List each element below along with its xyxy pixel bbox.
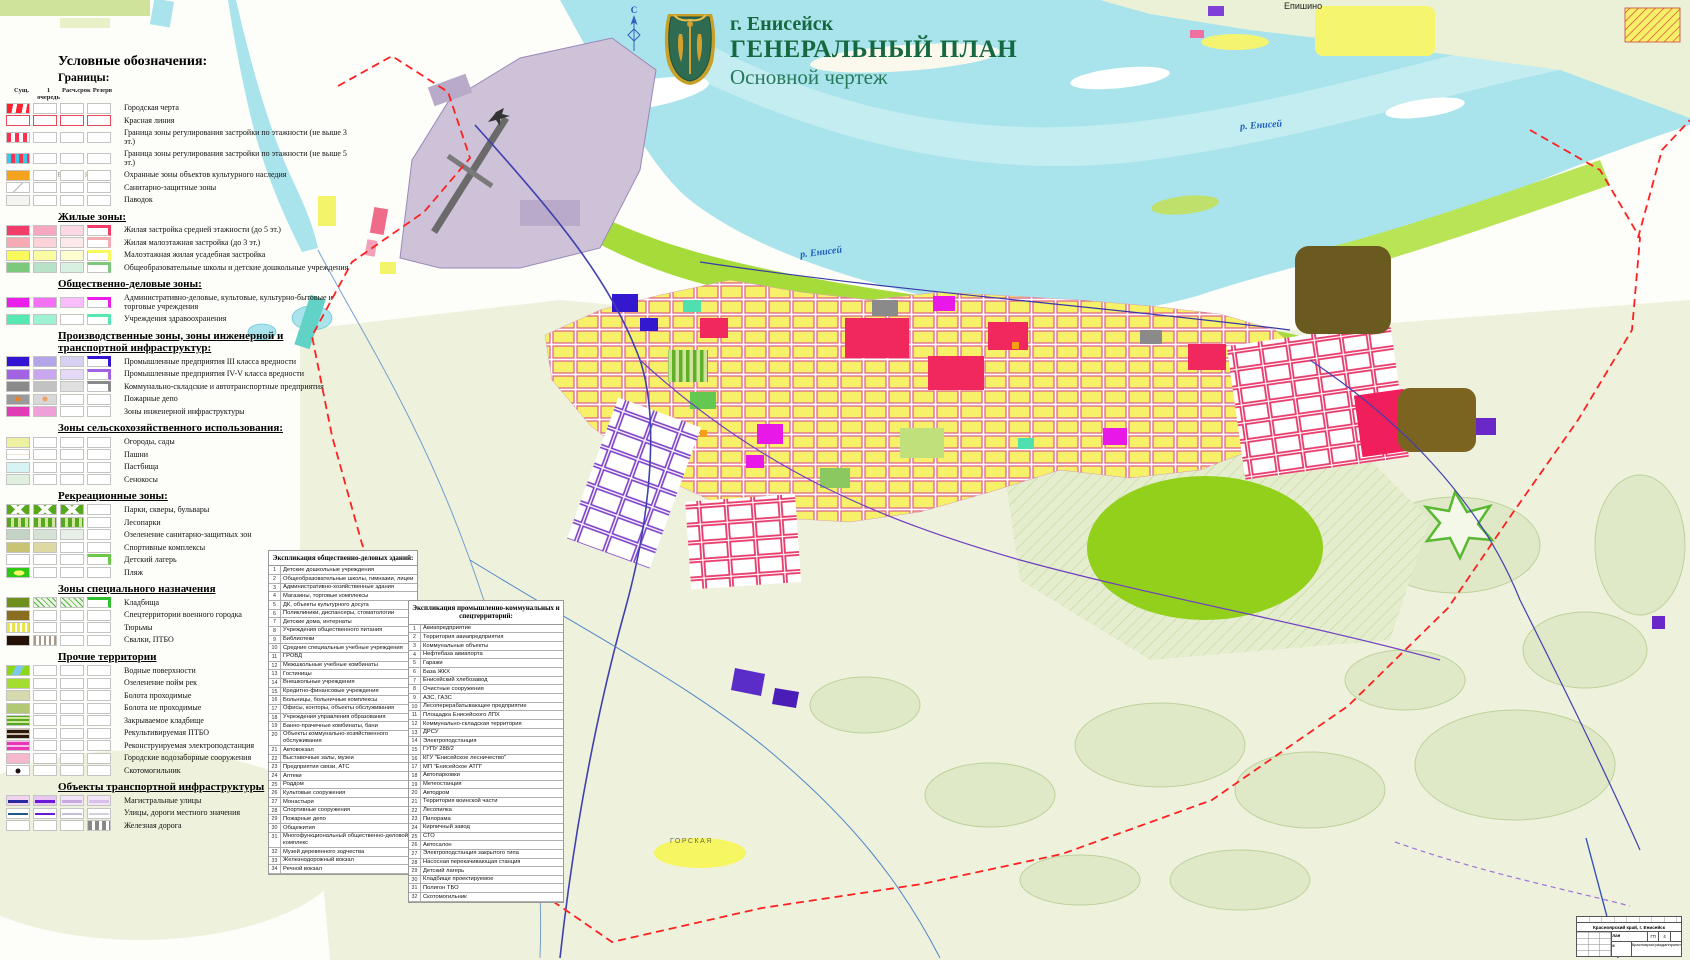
explication-row-text: Коммунально-складская территория <box>421 720 524 728</box>
explication-row-number: 6 <box>409 668 421 676</box>
city-name: г. Енисейск <box>730 12 1017 36</box>
explication-row-text: Многофункциональный общественно-деловой … <box>281 833 417 847</box>
legend-item-label: Спортивные комплексы <box>118 543 354 553</box>
legend-swatch <box>60 715 84 726</box>
settlement-label: Епишино <box>1284 1 1322 11</box>
explication-row: 24Кирпичный завод <box>409 824 563 833</box>
legend-column-label: Резерв <box>89 87 116 101</box>
legend-swatch <box>60 517 84 528</box>
explication-row-number: 14 <box>409 737 421 745</box>
legend-item-label: Граница зоны регулирования застройки по … <box>118 149 354 169</box>
legend-swatch <box>87 250 111 261</box>
legend-swatch <box>33 665 57 676</box>
legend-swatch <box>6 262 30 273</box>
legend-item: Пляж <box>6 567 354 578</box>
explication-row-number: 19 <box>409 781 421 789</box>
legend-item: Спецтерритории военного городка <box>6 610 354 621</box>
legend-swatch <box>60 529 84 540</box>
legend-swatches <box>6 808 118 819</box>
explication-row-text: Автосалон <box>421 841 454 849</box>
legend-item-label: Огороды, сады <box>118 437 354 447</box>
explication-row: 5Гаражи <box>409 659 563 668</box>
legend-item: Водные поверхности <box>6 665 354 676</box>
explication-row: 19Метеостанция <box>409 781 563 790</box>
explication-row-number: 28 <box>409 859 421 867</box>
legend-item: Озеленение санитарно-защитных зон <box>6 529 354 540</box>
legend-swatch <box>87 765 111 776</box>
explication-row-number: 23 <box>409 815 421 823</box>
legend-swatch <box>87 554 111 565</box>
legend-item: Городские водозаборные сооружения <box>6 753 354 764</box>
explication-row-text: Насосная перекачивающая станция <box>421 859 522 867</box>
district-label: ГОРСКАЯ <box>670 838 713 845</box>
compass-north: С <box>624 6 644 58</box>
explication-row: 21Территория воинской части <box>409 798 563 807</box>
explication-row-number: 17 <box>409 763 421 771</box>
legend-swatch <box>60 182 84 193</box>
legend-swatches <box>6 740 118 751</box>
legend-swatch <box>33 394 57 405</box>
legend-item-label: Пожарные депо <box>118 394 354 404</box>
legend-swatch <box>87 728 111 739</box>
legend-item-label: Пастбища <box>118 462 354 472</box>
legend-swatch <box>6 297 30 308</box>
legend-item: Пашни <box>6 449 354 460</box>
explication-row-number: 15 <box>409 746 421 754</box>
legend-swatches <box>6 381 118 392</box>
legend-swatch <box>33 820 57 831</box>
legend-item-label: Пашни <box>118 450 354 460</box>
legend-swatch <box>87 153 111 164</box>
explication-row-text: КГУ "Енисейское лесничество" <box>421 755 508 763</box>
explication-row-number: 7 <box>409 677 421 685</box>
legend-swatch <box>33 406 57 417</box>
legend-swatches <box>6 225 118 236</box>
explication-row: 16КГУ "Енисейское лесничество" <box>409 755 563 764</box>
legend-column-label: Сущ. <box>8 87 35 101</box>
legend-item-label: Болота проходимые <box>118 691 354 701</box>
legend-swatches <box>6 356 118 367</box>
explication-row-text: ГУПУ 288/2 <box>421 746 456 754</box>
legend-swatches <box>6 690 118 701</box>
legend-swatches <box>6 567 118 578</box>
legend-item: Кладбища <box>6 597 354 608</box>
explication-row-text: Лесоперерабатывающее предприятие <box>421 703 529 711</box>
legend-swatches <box>6 765 118 776</box>
explication-row: 20Автодром <box>409 789 563 798</box>
legend-swatch <box>60 297 84 308</box>
swatch-road-line <box>8 800 28 803</box>
legend-item-label: Административно-деловые, культовые, куль… <box>118 293 354 313</box>
legend-item-label: Скотомогильник <box>118 766 354 776</box>
legend-heading: Условные обозначения: <box>58 54 354 70</box>
legend-swatch <box>60 622 84 633</box>
legend-swatch <box>33 369 57 380</box>
explication-row: 30Кладбище проектируемое <box>409 876 563 885</box>
explication-row: 10Лесоперерабатывающее предприятие <box>409 703 563 712</box>
explication-row-number: 4 <box>409 651 421 659</box>
legend-swatch <box>60 394 84 405</box>
legend-swatch <box>60 765 84 776</box>
legend-swatch <box>33 795 57 806</box>
legend-swatch <box>6 437 30 448</box>
explication-row-number: 11 <box>409 711 421 719</box>
legend-swatch <box>60 690 84 701</box>
legend-item-label: Пляж <box>118 568 354 578</box>
plan-title: ГЕНЕРАЛЬНЫЙ ПЛАН <box>730 36 1017 65</box>
legend-section-header: Объекты транспортной инфраструктуры <box>58 781 338 793</box>
legend-swatch <box>33 808 57 819</box>
legend-swatch <box>6 554 30 565</box>
legend-swatch <box>33 225 57 236</box>
explication-row-number: 27 <box>409 850 421 858</box>
explication-row-text: Площадка Енисейского ЛПХ <box>421 711 502 719</box>
legend-item-label: Тюрьмы <box>118 623 354 633</box>
legend-columns: Сущ.1 очередьРасч.срокРезерв <box>8 87 354 101</box>
legend-swatch <box>87 715 111 726</box>
legend-swatches <box>6 170 118 181</box>
explication-row-text: Территория воинской части <box>421 798 499 806</box>
legend-swatch <box>60 195 84 206</box>
legend-swatches <box>6 115 118 126</box>
legend-swatch <box>33 250 57 261</box>
legend-swatch <box>87 690 111 701</box>
legend-item: Административно-деловые, культовые, куль… <box>6 293 354 313</box>
legend-item-label: Жилая малоэтажная застройка (до 3 эт.) <box>118 238 354 248</box>
legend-swatch <box>6 517 30 528</box>
legend-swatches <box>6 610 118 621</box>
legend-section-header: Прочие территории <box>58 651 338 663</box>
legend-swatch <box>6 314 30 325</box>
compass-letter: С <box>624 6 644 15</box>
legend-item: Озеленение пойм рек <box>6 678 354 689</box>
legend-swatch <box>87 394 111 405</box>
explication-row: 25СТО <box>409 833 563 842</box>
explication-row-text: База ЖКХ <box>421 668 452 676</box>
legend-swatch <box>6 394 30 405</box>
legend-swatch <box>33 753 57 764</box>
explication-row-text: Лесопилка <box>421 807 454 815</box>
stamp-organization: Красноярскгражданпроект <box>1632 942 1681 956</box>
legend-swatches <box>6 622 118 633</box>
swatch-road-line <box>35 813 55 816</box>
legend-swatch <box>6 567 30 578</box>
legend-item: Пастбища <box>6 462 354 473</box>
explication-row: 28Насосная перекачивающая станция <box>409 859 563 868</box>
legend-swatch <box>6 356 30 367</box>
legend-item-label: Общеобразовательные школы и детские дошк… <box>118 263 354 273</box>
legend-swatch <box>6 153 30 164</box>
legend-swatch <box>87 225 111 236</box>
legend-item-label: Закрываемое кладбище <box>118 716 354 726</box>
legend-item-label: Озеленение санитарно-защитных зон <box>118 530 354 540</box>
explication-row-number: 22 <box>409 807 421 815</box>
stamp-signature-grid <box>1577 931 1612 956</box>
swatch-road-line <box>89 813 109 816</box>
legend-swatch <box>60 115 84 126</box>
legend-item-label: Промышленные предприятия III класса вред… <box>118 357 354 367</box>
legend-swatch <box>6 808 30 819</box>
legend-swatches <box>6 153 118 164</box>
legend-item-label: Рекультивируемая ПТБО <box>118 728 354 738</box>
legend-swatches <box>6 262 118 273</box>
legend-swatch <box>60 103 84 114</box>
legend-swatch <box>6 369 30 380</box>
explication-row: 27Электроподстанция закрытого типа <box>409 850 563 859</box>
explication-title: Экспликация промышленно-коммунальных и с… <box>409 601 563 624</box>
explication-row-text: Метеостанция <box>421 781 464 789</box>
legend-item-label: Городская черта <box>118 103 354 113</box>
explication-row-text: Музей деревянного зодчества <box>281 848 366 856</box>
legend-swatch <box>6 820 30 831</box>
legend-swatches <box>6 504 118 515</box>
legend-swatch <box>60 437 84 448</box>
legend-swatch <box>60 635 84 646</box>
explication-row-number: 12 <box>409 720 421 728</box>
legend-swatch <box>87 115 111 126</box>
legend-item-label: Водные поверхности <box>118 666 354 676</box>
legend-column-label: 1 очередь <box>35 87 62 101</box>
legend-swatches <box>6 437 118 448</box>
explication-industrial-territories: Экспликация промышленно-коммунальных и с… <box>408 600 564 903</box>
legend-swatch <box>6 542 30 553</box>
explication-row-number: 31 <box>269 833 281 847</box>
explication-row: 33Железнодорожный вокзал <box>269 857 417 866</box>
legend-swatch <box>6 406 30 417</box>
legend-swatch <box>33 195 57 206</box>
legend-swatches <box>6 462 118 473</box>
legend-item-label: Железная дорога <box>118 821 354 831</box>
legend-swatch <box>33 132 57 143</box>
legend-swatches <box>6 474 118 485</box>
explication-row: 1Авиапредприятие <box>409 625 563 634</box>
legend-section-header: Зоны специального назначения <box>58 583 338 595</box>
legend-swatch <box>6 225 30 236</box>
explication-row-number: 21 <box>409 798 421 806</box>
explication-row: 18Автопарковки <box>409 772 563 781</box>
legend-swatch <box>6 753 30 764</box>
legend-swatches <box>6 795 118 806</box>
legend-swatch <box>33 356 57 367</box>
legend-swatch <box>33 153 57 164</box>
explication-row: 14Электроподстанция <box>409 737 563 746</box>
legend-swatches <box>6 529 118 540</box>
explication-row: 2Территория авиапредприятия <box>409 633 563 642</box>
legend-swatch <box>6 715 30 726</box>
legend-swatch <box>6 462 30 473</box>
legend-swatches <box>6 753 118 764</box>
explication-row-text: Автодром <box>421 789 451 797</box>
genplan-sheet: С г. Енисейск ГЕНЕРАЛЬНЫЙ ПЛАН Основной … <box>0 0 1690 960</box>
explication-row-text: АЗС, ГАЗС <box>421 694 454 702</box>
legend-item: Учреждения здравоохранения <box>6 314 354 325</box>
explication-rows: 1Авиапредприятие2Территория авиапредприя… <box>409 624 563 902</box>
legend-item-label: Учреждения здравоохранения <box>118 314 354 324</box>
legend-swatches <box>6 678 118 689</box>
legend-swatch <box>6 170 30 181</box>
legend-swatch <box>6 237 30 248</box>
legend-item-label: Коммунально-складские и автотранспортные… <box>118 382 354 392</box>
swatch-dot <box>43 397 48 402</box>
legend-swatch <box>33 597 57 608</box>
legend-swatches <box>6 703 118 714</box>
legend-swatch <box>87 297 111 308</box>
legend-swatch <box>33 504 57 515</box>
legend-item-label: Детский лагерь <box>118 555 354 565</box>
legend-item: Городская черта <box>6 103 354 114</box>
legend-swatch <box>6 765 30 776</box>
title-lines: г. Енисейск ГЕНЕРАЛЬНЫЙ ПЛАН Основной че… <box>730 12 1017 90</box>
legend-swatch <box>33 635 57 646</box>
legend-swatch <box>6 115 30 126</box>
legend-swatch <box>6 103 30 114</box>
explication-row-number: 18 <box>409 772 421 780</box>
explication-row-text: МП "Енисейское АТП" <box>421 763 484 771</box>
legend-swatch <box>33 262 57 273</box>
legend-item-label: Улицы, дороги местного значения <box>118 808 354 818</box>
legend-swatches <box>6 182 118 193</box>
legend-swatch <box>6 250 30 261</box>
legend-swatch <box>60 597 84 608</box>
legend-item-label: Сенокосы <box>118 475 354 485</box>
legend-swatches <box>6 406 118 417</box>
legend-swatch <box>87 103 111 114</box>
legend-swatch <box>87 740 111 751</box>
legend-item: Тюрьмы <box>6 622 354 633</box>
explication-row-number: 16 <box>409 755 421 763</box>
legend-swatch <box>60 728 84 739</box>
legend-section-header: Производственные зоны, зоны инженерной и… <box>58 330 338 355</box>
explication-row: 13ДРСУ <box>409 729 563 738</box>
explication-row-text: Авиапредприятие <box>421 625 473 633</box>
explication-row-number: 3 <box>409 642 421 650</box>
legend-item-label: Озеленение пойм рек <box>118 678 354 688</box>
explication-row-text: Полигон ТБО <box>421 884 461 892</box>
legend-swatch <box>87 635 111 646</box>
explication-row-number: 13 <box>409 729 421 737</box>
legend-swatch <box>33 703 57 714</box>
legend-item: Паводок <box>6 195 354 206</box>
explication-row-number: 33 <box>269 857 281 865</box>
title-stamp: Красноярский край, г. Енисейск Генеральн… <box>1576 916 1682 957</box>
legend-swatches <box>6 297 118 308</box>
explication-row: 32Музей деревянного зодчества <box>269 848 417 857</box>
legend-swatch <box>33 314 57 325</box>
legend-item: Свалки, ПТБО <box>6 635 354 646</box>
legend-swatch <box>87 449 111 460</box>
explication-row-text: Гаражи <box>421 659 445 667</box>
legend-swatches <box>6 237 118 248</box>
legend-item: Скотомогильник <box>6 765 354 776</box>
explication-row-number: 26 <box>409 841 421 849</box>
legend-subheading: Границы: <box>58 72 354 84</box>
legend-swatch <box>87 678 111 689</box>
explication-row-number: 32 <box>269 848 281 856</box>
explication-row: 29Детский лагерь <box>409 867 563 876</box>
legend-swatches <box>6 314 118 325</box>
explication-row: 31Многофункциональный общественно-делово… <box>269 833 417 848</box>
explication-row: 17МП "Енисейское АТП" <box>409 763 563 772</box>
explication-row-text: Енисейский хлебозавод <box>421 677 489 685</box>
explication-row-text: Коммунальные объекты <box>421 642 490 650</box>
legend-swatch <box>33 237 57 248</box>
explication-row: 32Скотомогильник <box>409 893 563 902</box>
legend-section-header: Общественно-деловые зоны: <box>58 278 338 290</box>
swatch-road-line <box>8 813 28 816</box>
explication-row-number: 10 <box>409 703 421 711</box>
legend-swatches <box>6 635 118 646</box>
legend-swatch <box>60 381 84 392</box>
explication-row-text: Железнодорожный вокзал <box>281 857 356 865</box>
legend-swatch <box>60 665 84 676</box>
legend-item: Железная дорога <box>6 820 354 831</box>
legend-swatch <box>87 170 111 181</box>
explication-row-number: 2 <box>409 633 421 641</box>
stamp-stage-cells: ГП 4 <box>1648 932 1681 941</box>
stamp-sheet: 4 <box>1659 932 1670 941</box>
legend-item-label: Парки, скверы, бульвары <box>118 505 354 515</box>
legend-swatch <box>87 262 111 273</box>
legend-item: Лесопарки <box>6 517 354 528</box>
legend-swatch <box>33 103 57 114</box>
legend-item-label: Болота не проходимые <box>118 703 354 713</box>
explication-row: 22Лесопилка <box>409 807 563 816</box>
legend-swatch <box>33 567 57 578</box>
legend-item: Закрываемое кладбище <box>6 715 354 726</box>
legend-swatch <box>60 504 84 515</box>
legend-swatch <box>33 740 57 751</box>
legend-swatch <box>33 182 57 193</box>
legend-swatch <box>33 449 57 460</box>
explication-row-number: 25 <box>409 833 421 841</box>
explication-row-text: Очистные сооружения <box>421 685 486 693</box>
legend-swatch <box>87 622 111 633</box>
explication-row: 15ГУПУ 288/2 <box>409 746 563 755</box>
legend-swatch <box>87 381 111 392</box>
legend-swatch <box>6 678 30 689</box>
legend-swatch <box>33 690 57 701</box>
legend-swatch <box>6 703 30 714</box>
legend-swatch <box>87 132 111 143</box>
legend-swatch <box>87 314 111 325</box>
legend-swatch <box>6 635 30 646</box>
explication-row-number: 24 <box>409 824 421 832</box>
legend-body: Сущ.1 очередьРасч.срокРезервГородская че… <box>6 87 354 831</box>
legend-swatches <box>6 554 118 565</box>
explication-row-number: 34 <box>269 865 281 873</box>
explication-row-text: Электроподстанция закрытого типа <box>421 850 521 858</box>
legend-item-label: Лесопарки <box>118 518 354 528</box>
legend-swatch <box>60 356 84 367</box>
legend-swatch <box>60 554 84 565</box>
legend-swatch <box>60 369 84 380</box>
legend-item-label: Промышленные предприятия IV-V класса вре… <box>118 369 354 379</box>
legend-swatch <box>33 610 57 621</box>
legend-swatch <box>60 250 84 261</box>
legend-swatch <box>33 437 57 448</box>
legend-swatch <box>33 622 57 633</box>
legend-swatch <box>87 820 111 831</box>
legend-swatch <box>60 610 84 621</box>
legend-item-label: Городские водозаборные сооружения <box>118 753 354 763</box>
legend-swatch <box>6 449 30 460</box>
swatch-dot <box>16 397 21 402</box>
legend-item: Жилая застройка средней этажности (до 5 … <box>6 225 354 236</box>
explication-row-number: 29 <box>409 867 421 875</box>
legend-item-label: Реконструируемая электроподстанция <box>118 741 354 751</box>
legend-swatch <box>60 225 84 236</box>
legend-swatch <box>60 406 84 417</box>
